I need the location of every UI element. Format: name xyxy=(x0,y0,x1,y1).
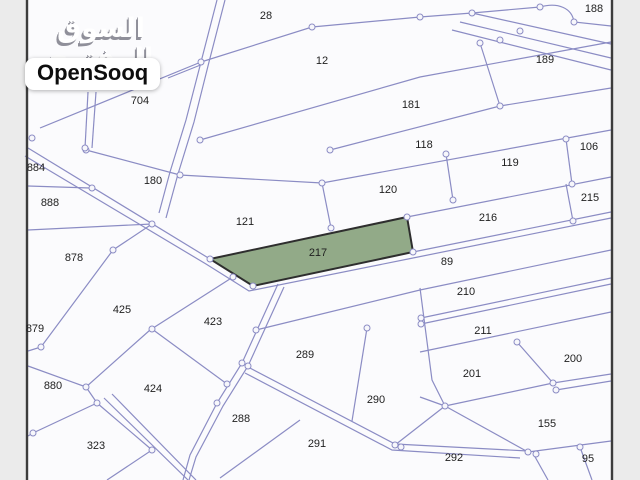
parcel-label-210: 210 xyxy=(457,286,475,298)
parcel-label-425: 425 xyxy=(113,304,131,316)
parcel-label-28: 28 xyxy=(260,10,272,22)
parcel-label-189: 189 xyxy=(536,54,554,66)
parcel-label-120: 120 xyxy=(379,184,397,196)
parcel-label-323: 323 xyxy=(87,440,105,452)
parcel-label-424: 424 xyxy=(144,383,162,395)
parcel-label-181: 181 xyxy=(402,99,420,111)
parcel-label-215: 215 xyxy=(581,192,599,204)
parcel-label-155: 155 xyxy=(538,418,556,430)
parcel-label-879: 879 xyxy=(26,323,44,335)
parcel-label-180: 180 xyxy=(144,175,162,187)
parcel-label-95: 95 xyxy=(582,453,594,465)
parcel-label-704: 704 xyxy=(131,95,149,107)
parcel-label-289: 289 xyxy=(296,349,314,361)
parcel-label-188: 188 xyxy=(585,3,603,15)
parcel-label-290: 290 xyxy=(367,394,385,406)
parcel-label-12: 12 xyxy=(316,55,328,67)
parcel-label-216: 216 xyxy=(479,212,497,224)
listing-map-image: 2812188189704181118106119884180120215888… xyxy=(0,0,640,480)
parcel-label-89: 89 xyxy=(441,256,453,268)
parcel-label-211: 211 xyxy=(474,325,492,337)
parcel-label-217: 217 xyxy=(309,247,327,259)
opensooq-badge-label: OpenSooq xyxy=(37,60,148,85)
parcel-label-201: 201 xyxy=(463,368,481,380)
parcel-label-121: 121 xyxy=(236,216,254,228)
parcel-label-423: 423 xyxy=(204,316,222,328)
parcel-label-880: 880 xyxy=(44,380,62,392)
parcel-label-119: 119 xyxy=(501,157,519,169)
opensooq-badge: OpenSooq xyxy=(25,58,160,90)
parcel-label-106: 106 xyxy=(580,141,598,153)
parcel-label-291: 291 xyxy=(308,438,326,450)
parcel-label-878: 878 xyxy=(65,252,83,264)
parcel-label-888: 888 xyxy=(41,197,59,209)
parcel-label-288: 288 xyxy=(232,413,250,425)
parcel-label-118: 118 xyxy=(415,139,433,151)
parcel-label-292: 292 xyxy=(445,452,463,464)
parcel-label-884: 884 xyxy=(27,162,45,174)
parcel-label-200: 200 xyxy=(564,353,582,365)
